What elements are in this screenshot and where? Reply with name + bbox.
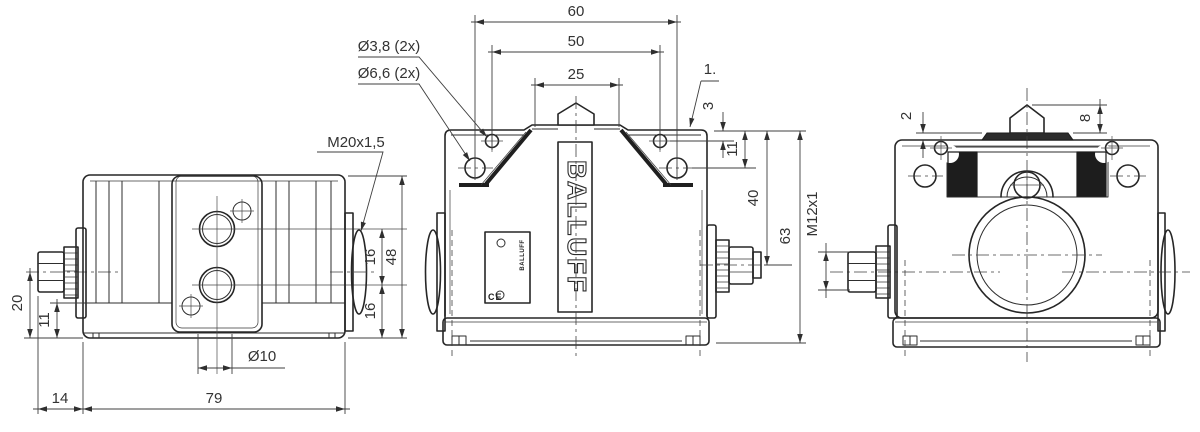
ce-mark: CE <box>488 292 503 302</box>
balluff-logo: BALLUFF <box>562 160 592 294</box>
technical-drawing-page: 20 11 14 79 Ø10 16 16 48 M20x1,5 <box>0 0 1200 432</box>
hole-small-callout: Ø3,8 (2x) <box>358 38 421 55</box>
switch-body-end <box>895 140 1158 318</box>
hole-large-callout: Ø6,6 (2x) <box>358 65 421 82</box>
dim-8: 8 <box>1077 114 1094 122</box>
dim-60: 60 <box>568 3 585 20</box>
dim-20: 20 <box>9 295 26 312</box>
dim-11-front: 11 <box>724 141 741 157</box>
dim-40: 40 <box>745 190 762 207</box>
dim-14: 14 <box>52 390 69 407</box>
connector-flange <box>707 225 716 318</box>
m12-connector <box>729 247 753 284</box>
dim-50: 50 <box>568 33 585 50</box>
m12-thread-label: M12x1 <box>804 191 821 236</box>
hole-dia-label: Ø10 <box>248 348 276 365</box>
dim-63: 63 <box>777 228 794 245</box>
dim-11: 11 <box>36 312 53 328</box>
dim-25: 25 <box>568 66 585 83</box>
head-plate <box>982 133 1073 140</box>
plate-screw <box>497 239 505 247</box>
m20-thread-label: M20x1,5 <box>327 134 385 151</box>
dim-3: 3 <box>700 102 717 110</box>
dim-16-lower: 16 <box>362 303 379 320</box>
dim-2: 2 <box>898 112 915 120</box>
end-view: 2 8 M12x1 <box>804 88 1190 362</box>
dim-16-upper: 16 <box>362 249 379 266</box>
m20-gland <box>426 230 441 314</box>
ref-1-label: 1. <box>704 61 717 78</box>
nameplate-logo: BALLUFF <box>520 239 526 270</box>
front-view: BALLUFF BALLUFF CE 60 50 25 Ø3,8 (2x) Ø6… <box>358 3 806 360</box>
side-view: 20 11 14 79 Ø10 16 16 48 M20x1,5 <box>9 134 407 414</box>
dim-79: 79 <box>206 390 223 407</box>
limit-switch-drawing: 20 11 14 79 Ø10 16 16 48 M20x1,5 <box>0 0 1200 432</box>
dim-48: 48 <box>383 249 400 266</box>
